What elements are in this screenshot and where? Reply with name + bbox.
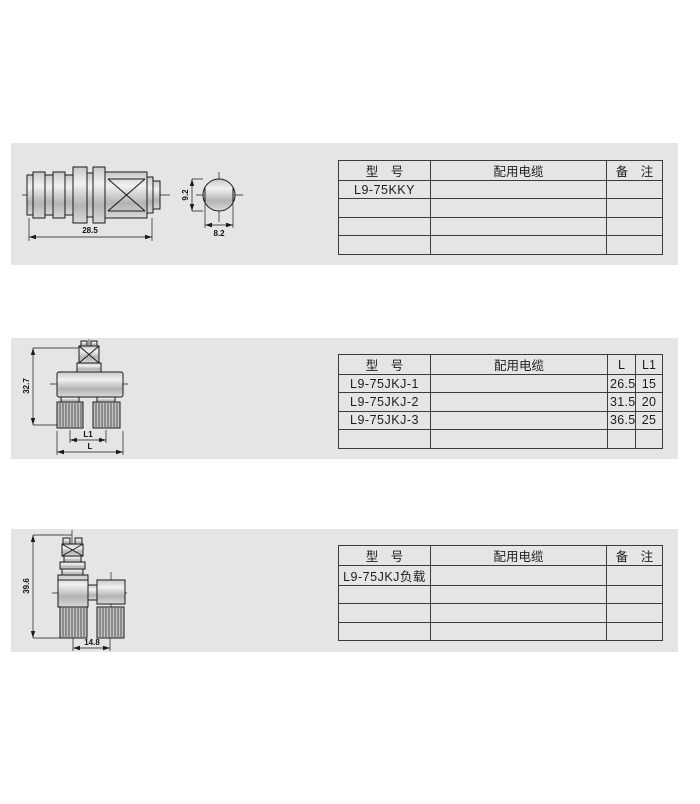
knurled-coupling-left <box>60 607 87 638</box>
spec-table-load-adapter: 型 号 配用电缆 备 注 L9-75JKJ负载 <box>338 545 663 641</box>
load-body <box>52 530 127 638</box>
col-header-model: 型 号 <box>339 355 431 375</box>
section-panel-tee-adapter: 32.7 L1 <box>11 338 678 459</box>
cell-cable <box>431 236 607 254</box>
cell-cable <box>431 393 608 411</box>
section-panel-load-adapter: 39.6 <box>11 529 678 652</box>
cell-remark <box>607 604 663 622</box>
cell-remark <box>607 586 663 604</box>
cell-cable <box>431 604 607 622</box>
technical-drawing-straight-adapter: 28.5 9.2 8.2 <box>22 158 250 250</box>
cell-cable <box>431 566 607 586</box>
knurled-coupling-right <box>97 607 124 638</box>
table-row <box>339 236 663 254</box>
cell-L: 26.5 <box>608 375 636 393</box>
dim-end-width-label: 8.2 <box>213 229 225 238</box>
cell-model: L9-75JKJ-1 <box>339 375 431 393</box>
table-row: L9-75KKY <box>339 181 663 199</box>
table-row: L9-75JKJ-2 31.5 20 <box>339 393 663 411</box>
table-header-row: 型 号 配用电缆 备 注 <box>339 546 663 566</box>
dim-end-height-label: 9.2 <box>181 189 190 201</box>
col-header-remark: 备 注 <box>607 161 663 181</box>
cell-remark <box>607 566 663 586</box>
cell-remark <box>607 199 663 217</box>
cell-cable <box>431 217 607 235</box>
cell-remark <box>607 181 663 199</box>
cell-model: L9-75JKJ-2 <box>339 393 431 411</box>
spec-table-straight-adapter: 型 号 配用电缆 备 注 L9-75KKY <box>338 160 663 255</box>
dim-spacing-label: 14.8 <box>84 638 100 647</box>
col-header-remark: 备 注 <box>607 546 663 566</box>
col-header-cable: 配用电缆 <box>431 355 608 375</box>
dimension-spacing: 14.8 <box>73 638 110 651</box>
cell-cable <box>431 622 607 640</box>
cell-L <box>608 430 636 448</box>
cell-L1: 25 <box>636 411 663 429</box>
technical-drawing-tee-adapter: 32.7 L1 <box>20 339 140 458</box>
table-row: L9-75JKJ负载 <box>339 566 663 586</box>
table-header-row: 型 号 配用电缆 L L1 <box>339 355 663 375</box>
cell-L: 36.5 <box>608 411 636 429</box>
knurled-coupling-right <box>93 402 120 428</box>
table-header-row: 型 号 配用电缆 备 注 <box>339 161 663 181</box>
table-row: L9-75JKJ-3 36.5 25 <box>339 411 663 429</box>
cell-L1: 20 <box>636 393 663 411</box>
cell-L1: 15 <box>636 375 663 393</box>
dimension-length: 28.5 <box>29 218 152 241</box>
cell-cable <box>431 430 608 448</box>
dim-length-label: 28.5 <box>82 226 98 235</box>
dim-outer-label: L <box>88 442 93 451</box>
table-row <box>339 586 663 604</box>
cell-model: L9-75JKJ负载 <box>339 566 431 586</box>
cell-model: L9-75JKJ-3 <box>339 411 431 429</box>
dim-height-label: 39.6 <box>22 578 31 594</box>
cell-model <box>339 430 431 448</box>
table-row <box>339 622 663 640</box>
table-row <box>339 199 663 217</box>
knurled-coupling-left <box>57 402 83 428</box>
table-row: L9-75JKJ-1 26.5 15 <box>339 375 663 393</box>
cell-remark <box>607 217 663 235</box>
cell-remark <box>607 622 663 640</box>
cell-remark <box>607 236 663 254</box>
side-view <box>22 167 170 223</box>
cell-model <box>339 236 431 254</box>
spec-table-tee-adapter: 型 号 配用电缆 L L1 L9-75JKJ-1 26.5 15 L9-75JK… <box>338 354 663 449</box>
cell-cable <box>431 199 607 217</box>
cell-model <box>339 586 431 604</box>
dim-height-label: 32.7 <box>22 378 31 394</box>
cell-cable <box>431 411 608 429</box>
cell-model <box>339 217 431 235</box>
table-row <box>339 604 663 622</box>
technical-drawing-load-adapter: 39.6 <box>22 530 140 654</box>
col-header-model: 型 号 <box>339 161 431 181</box>
col-header-L1: L1 <box>636 355 663 375</box>
section-panel-straight-adapter: 28.5 9.2 8.2 型 号 配用电缆 备 注 <box>11 143 678 265</box>
cell-cable <box>431 586 607 604</box>
table-row <box>339 430 663 448</box>
col-header-cable: 配用电缆 <box>431 161 607 181</box>
cell-cable <box>431 181 607 199</box>
col-header-L: L <box>608 355 636 375</box>
cell-cable <box>431 375 608 393</box>
cell-model <box>339 622 431 640</box>
cell-model: L9-75KKY <box>339 181 431 199</box>
col-header-model: 型 号 <box>339 546 431 566</box>
col-header-cable: 配用电缆 <box>431 546 607 566</box>
end-view: 9.2 8.2 <box>181 172 243 238</box>
table-row <box>339 217 663 235</box>
tee-body <box>50 339 128 428</box>
cell-model <box>339 199 431 217</box>
catalog-page: { "page": { "panel_bg": "#e5e5e5", "line… <box>0 0 700 804</box>
cell-L1 <box>636 430 663 448</box>
cell-L: 31.5 <box>608 393 636 411</box>
cell-model <box>339 604 431 622</box>
dim-inner-label: L1 <box>83 430 93 439</box>
